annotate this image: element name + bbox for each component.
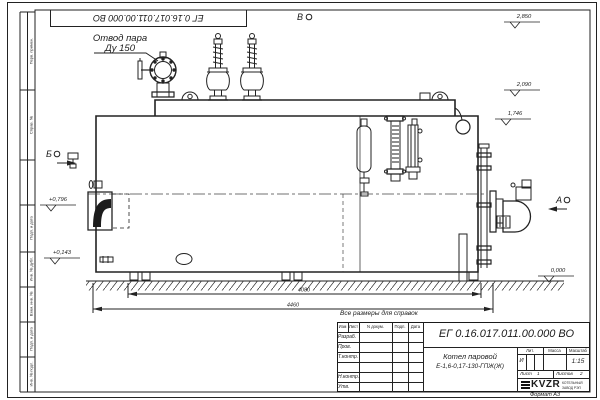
view-label-a: А xyxy=(548,195,570,212)
stamp-doc-number: ЕГ 0.16.017.011.00.000 ВО xyxy=(93,10,204,25)
margin-label-vzam-inv: Взам. инв. № xyxy=(29,292,34,317)
safety-valve-2 xyxy=(241,34,264,101)
tb-header-doc: N докум. xyxy=(359,324,392,329)
tb-mass-label: Масса xyxy=(543,348,566,353)
tb-line xyxy=(337,332,423,333)
tb-lit-label: Лит. xyxy=(517,348,543,353)
tb-header-izm: Изм xyxy=(337,324,348,329)
dimension-overall-text: 4460 xyxy=(287,303,300,309)
tb-row-tkontr: Т.контр. xyxy=(338,354,358,360)
tb-logo-sub1: КОТЕЛЬНЫЙ xyxy=(562,381,583,385)
elevation-0000: 0,000 xyxy=(538,268,574,282)
top-left-stamp: ЕГ 0.16.017.011.00.000 ВО xyxy=(50,10,247,27)
tb-scale-value: 1:15 xyxy=(566,358,590,365)
view-b-text: Б xyxy=(46,149,52,159)
elevation-2850: 2,850 xyxy=(504,14,540,28)
margin-label-inv-podl: Инв. № подл. xyxy=(29,362,34,387)
margin-label-sprav-no: Справ. № xyxy=(29,116,34,134)
tb-line xyxy=(337,382,423,383)
tb-line xyxy=(517,354,590,355)
elevation-2090: 2,090 xyxy=(504,82,540,96)
margin-label-podp-data-2: Подп. и дата xyxy=(29,327,34,351)
tb-line xyxy=(337,372,423,373)
tb-row-utv: Утв. xyxy=(338,384,349,390)
kvzr-logo-icon xyxy=(521,381,530,390)
elevation-0000-text: 0,000 xyxy=(551,268,566,274)
margin-label-perv-primen: Перв. примен. xyxy=(29,38,34,65)
rear-flange-column xyxy=(477,144,491,268)
tb-line xyxy=(337,342,423,343)
tb-sheets-label: Листов xyxy=(556,371,573,376)
tb-line xyxy=(337,362,423,363)
drawing-sheet: Отвод пара Ду 150 В Б А 2,850 2,090 1,74… xyxy=(0,0,600,400)
margin-label-inv-dubl: Инв. № дубл. xyxy=(29,257,34,282)
tb-line xyxy=(534,354,535,370)
view-v-text: В xyxy=(297,12,303,22)
burner-unit xyxy=(490,180,531,232)
elevation-left-upper: +0,796 xyxy=(40,197,76,211)
lifting-lug-left xyxy=(182,92,198,100)
drum-fittings xyxy=(420,93,470,134)
tb-line xyxy=(553,370,554,378)
elevation-2850-text: 2,850 xyxy=(516,14,532,20)
ground xyxy=(86,281,564,291)
tb-scale-label: Масштаб xyxy=(566,348,590,353)
tb-product-designation: Е-1,6-0,17-130-ГПЖ(Ж) xyxy=(423,363,517,370)
tb-header-list: Лист xyxy=(348,324,359,329)
tb-sheet-label: Лист xyxy=(520,371,532,376)
tb-row-nkontr: Н.контр. xyxy=(338,374,359,380)
lifting-lug-right xyxy=(432,92,448,100)
view-label-v: В xyxy=(297,12,312,22)
format-note: Формат А3 xyxy=(500,392,590,398)
tb-lit-value: И xyxy=(517,358,526,364)
water-level-instruments xyxy=(357,116,422,196)
view-label-b: Б xyxy=(46,149,76,166)
tb-sheets-value: 2 xyxy=(580,371,583,376)
view-a-text: А xyxy=(555,195,562,205)
steam-outlet-callout: Отвод пара Ду 150 xyxy=(93,33,158,61)
margin-label-podp-data-1: Подп. и дата xyxy=(29,216,34,240)
tb-row-prov: Пров. xyxy=(338,344,351,350)
boiler-supports xyxy=(130,272,478,280)
callout-text-line2: Ду 150 xyxy=(104,43,136,54)
steam-outlet-valve xyxy=(138,52,176,97)
elevation-1746: 1,746 xyxy=(495,111,531,125)
elevation-0143-text: +0,143 xyxy=(53,250,72,256)
elevation-left-lower: +0,143 xyxy=(44,250,80,264)
tb-header-date: Дата xyxy=(408,324,423,329)
tb-line xyxy=(337,352,423,353)
elevation-1746-text: 1,746 xyxy=(508,111,523,117)
dimension-inner-text: 4080 xyxy=(298,288,311,294)
safety-valve-1 xyxy=(207,34,230,101)
reference-note: Все размеры для справок xyxy=(340,310,418,317)
tb-header-sign: Подп. xyxy=(392,324,408,329)
elevation-0796-text: +0,796 xyxy=(49,197,68,203)
manhole xyxy=(176,254,192,265)
tb-product-name: Котел паровой xyxy=(423,352,517,361)
tb-logo-text: KVZR xyxy=(531,379,560,390)
front-furnace-box xyxy=(68,153,129,263)
tb-logo-sub2: ЗАВОД РЭП xyxy=(562,386,581,390)
boiler-body xyxy=(88,100,486,281)
elevation-2090-text: 2,090 xyxy=(516,82,532,88)
tb-sheet-value: 1 xyxy=(537,371,540,376)
tb-doc-number: ЕГ 0.16.017.011.00.000 ВО xyxy=(423,328,590,340)
tb-row-razrab: Разраб. xyxy=(338,334,356,340)
tb-line xyxy=(526,354,527,370)
